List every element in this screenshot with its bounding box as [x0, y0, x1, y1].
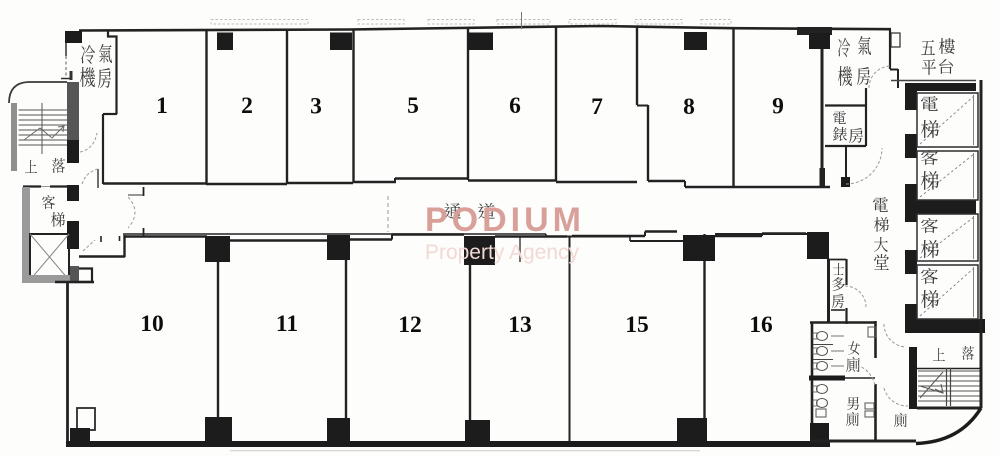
- svg-text:5: 5: [407, 93, 419, 119]
- svg-text:2: 2: [241, 93, 253, 119]
- svg-text:8: 8: [683, 94, 695, 120]
- svg-text:16: 16: [749, 312, 773, 338]
- svg-text:3: 3: [310, 94, 322, 120]
- svg-text:15: 15: [625, 312, 649, 338]
- svg-text:9: 9: [772, 94, 784, 120]
- svg-text:6: 6: [509, 93, 521, 119]
- svg-text:7: 7: [591, 94, 603, 120]
- svg-text:10: 10: [140, 311, 164, 337]
- svg-text:PODIUM: PODIUM: [425, 201, 585, 239]
- svg-text:11: 11: [276, 311, 298, 337]
- svg-text:1: 1: [156, 93, 168, 119]
- svg-text:12: 12: [398, 312, 422, 338]
- svg-text:Property Agency: Property Agency: [425, 241, 580, 264]
- svg-text:13: 13: [508, 312, 532, 338]
